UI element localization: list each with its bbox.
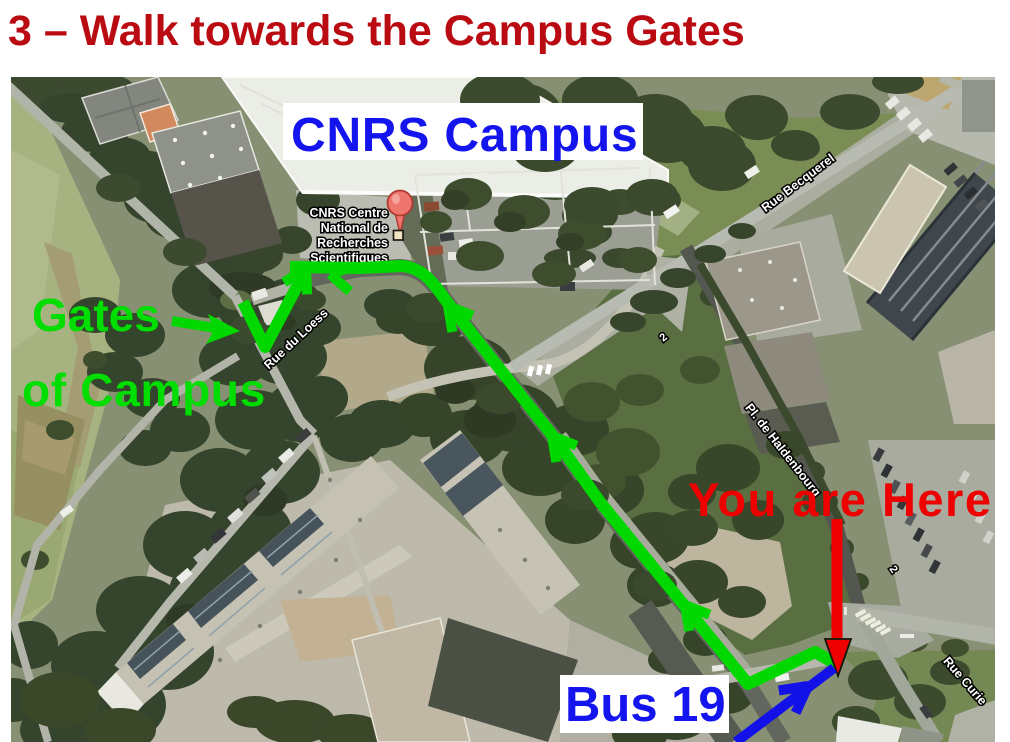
svg-text:of Campus: of Campus [22, 364, 266, 416]
svg-text:National de: National de [321, 221, 388, 235]
svg-text:Recherches: Recherches [317, 236, 388, 250]
svg-text:You are Here: You are Here [688, 473, 992, 526]
svg-text:3 – Walk towards the Campus Ga: 3 – Walk towards the Campus Gates [8, 7, 745, 55]
svg-text:Gates: Gates [32, 289, 160, 341]
svg-text:Bus 19: Bus 19 [565, 678, 726, 732]
svg-text:CNRS Campus: CNRS Campus [291, 109, 639, 162]
svg-text:CNRS Centre: CNRS Centre [310, 206, 389, 220]
